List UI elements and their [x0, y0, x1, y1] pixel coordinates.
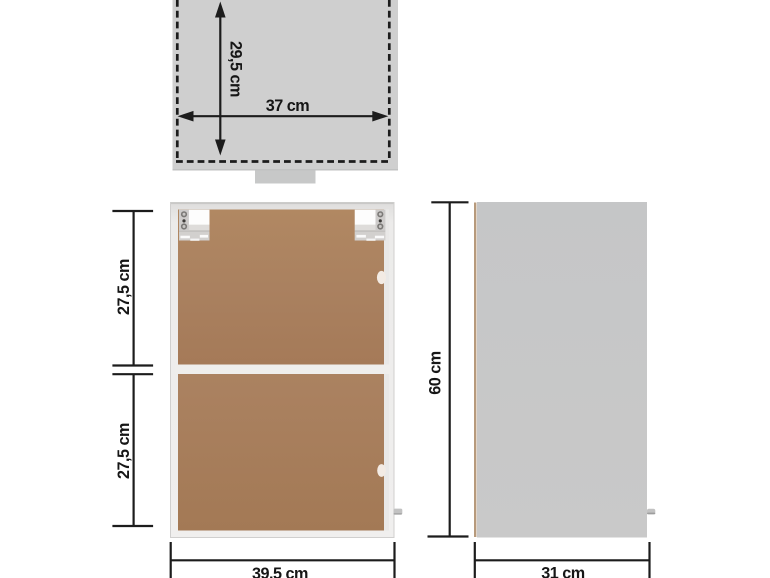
- svg-text:29,5 cm: 29,5 cm: [227, 41, 245, 97]
- svg-text:37 cm: 37 cm: [266, 97, 310, 115]
- svg-text:31 cm: 31 cm: [541, 565, 585, 578]
- svg-text:39.5 cm: 39.5 cm: [252, 565, 308, 578]
- svg-text:60 cm: 60 cm: [426, 351, 444, 395]
- svg-text:27,5 cm: 27,5 cm: [115, 259, 133, 315]
- svg-text:27,5 cm: 27,5 cm: [115, 423, 133, 479]
